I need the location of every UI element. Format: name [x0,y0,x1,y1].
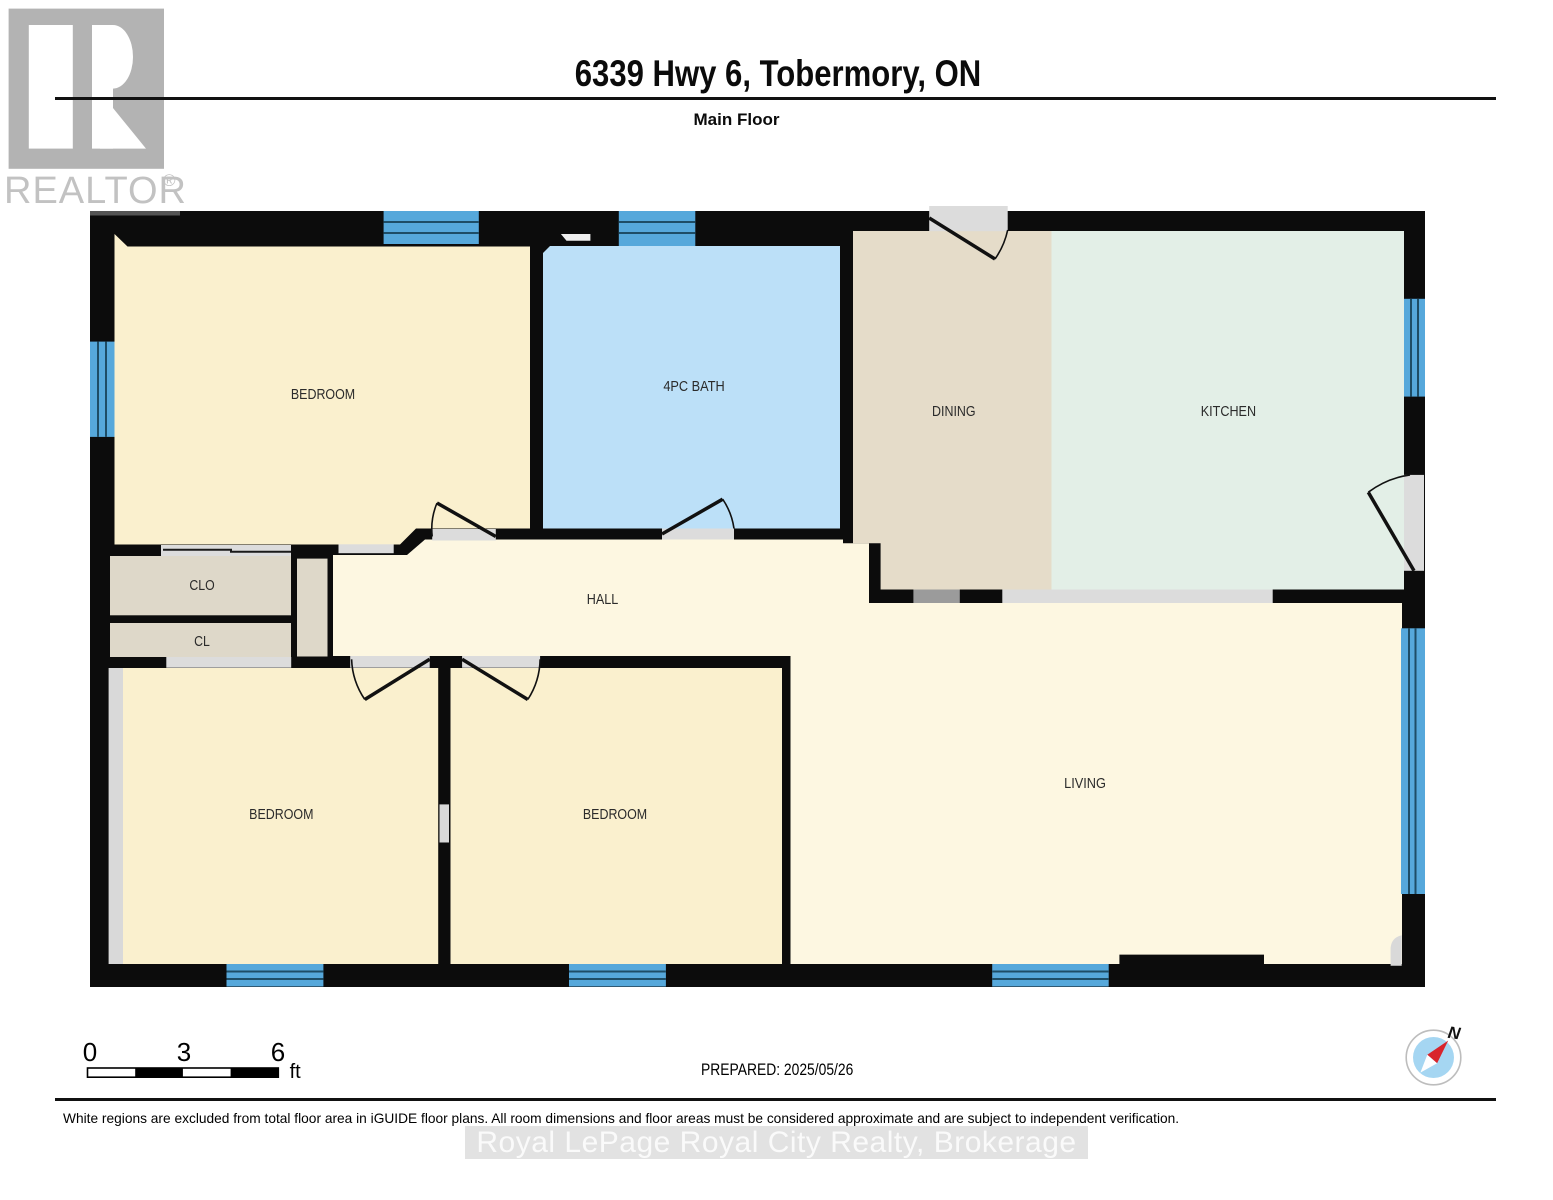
svg-text:BEDROOM: BEDROOM [583,806,647,822]
svg-text:DINING: DINING [932,403,976,419]
svg-text:KITCHEN: KITCHEN [1201,402,1256,419]
svg-text:BEDROOM: BEDROOM [249,806,313,822]
svg-text:LIVING: LIVING [1064,774,1106,791]
svg-text:4PC BATH: 4PC BATH [663,377,724,394]
svg-text:BEDROOM: BEDROOM [291,386,355,402]
svg-text:CLO: CLO [189,577,214,593]
svg-text:®: ® [163,171,176,190]
svg-text:ft: ft [290,1061,302,1083]
svg-text:CL: CL [194,633,210,649]
svg-text:3: 3 [177,1037,191,1067]
svg-text:0: 0 [83,1037,97,1067]
svg-text:HALL: HALL [587,590,619,607]
svg-text:N: N [1447,1023,1463,1044]
svg-text:6: 6 [271,1037,285,1067]
svg-text:REALTOR: REALTOR [4,170,187,212]
